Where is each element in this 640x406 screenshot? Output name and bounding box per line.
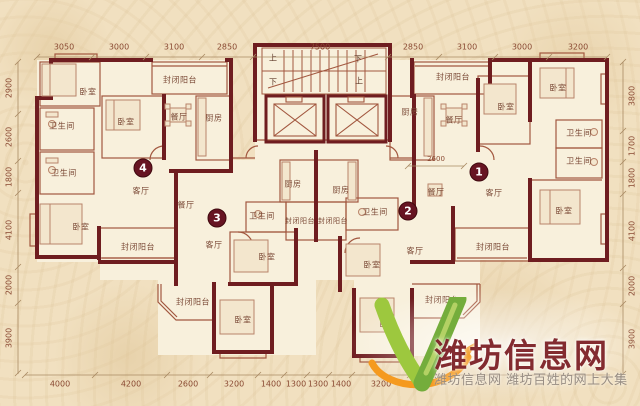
unit-badge: 3 [208, 209, 227, 228]
dimension-label-bottom: 3200 [224, 380, 244, 389]
dimension-label-left: 2600 [5, 127, 14, 147]
room-label: 卧室 [498, 102, 515, 113]
room-label: 客厅 [133, 186, 150, 197]
dimension-label-left: 3900 [5, 328, 14, 348]
dimension-label-top: 7500 [310, 43, 330, 52]
dimension-label-bottom: 2600 [178, 380, 198, 389]
dimension-label-bottom: 1300 [286, 380, 306, 389]
room-label: 卧室 [550, 83, 567, 94]
dimension-label-top: 3200 [568, 43, 588, 52]
room-label: 餐厅 [178, 200, 195, 211]
room-label: 客厅 [486, 188, 503, 199]
dimension-label-right: 3800 [628, 86, 637, 106]
room-label: 卧室 [235, 315, 252, 326]
room-label: 卧室 [259, 252, 276, 263]
room-label: 卧室 [73, 222, 90, 233]
dimension-label-top: 3100 [164, 43, 184, 52]
dimension-label-bottom: 4000 [50, 380, 70, 389]
dimension-label-top: 3000 [512, 43, 532, 52]
watermark-tagline: 潍坊信息网 潍坊百姓的网上大集 [434, 369, 628, 388]
stair-direction-label: 上 [355, 76, 363, 87]
dimension-label-top: 2850 [403, 43, 423, 52]
room-label: 厨房 [285, 179, 302, 190]
room-label: 封闭阳台 [176, 297, 210, 308]
dimension-label-top: 2850 [217, 43, 237, 52]
room-label: 卧室 [556, 206, 573, 217]
dimension-label-left: 2000 [5, 275, 14, 295]
room-label: 卫生间 [362, 207, 388, 218]
room-label: 客厅 [407, 246, 424, 257]
room-label: 封闭阳台 [436, 72, 470, 83]
dimension-label-internal: 2600 [427, 155, 445, 163]
room-label: 卫生间 [566, 128, 592, 139]
room-label: 卧室 [118, 117, 135, 128]
room-label: 卫生间 [249, 211, 275, 222]
unit-badge: 1 [470, 163, 489, 182]
stair-direction-label: 下 [354, 54, 362, 65]
room-label: 厨房 [206, 113, 223, 124]
dimension-label-bottom: 1300 [308, 380, 328, 389]
dimension-label-right: 1700 [628, 136, 637, 156]
room-label: 封闭阳台 [285, 216, 315, 226]
dimension-label-top: 3050 [54, 43, 74, 52]
room-label: 封闭阳台 [121, 242, 155, 253]
room-label: 卫生间 [49, 121, 75, 132]
room-label: 卫生间 [51, 168, 77, 179]
dimension-label-right: 4100 [628, 221, 637, 241]
room-label: 卫生间 [566, 156, 592, 167]
stair-direction-label: 下 [269, 77, 277, 88]
room-label: 厨房 [402, 107, 419, 118]
dimension-label-left: 1800 [5, 167, 14, 187]
dimension-label-top: 3000 [109, 43, 129, 52]
room-label: 餐厅 [171, 112, 188, 123]
room-label: 厨房 [333, 185, 350, 196]
dimension-label-bottom: 4200 [121, 380, 141, 389]
room-label: 客厅 [206, 240, 223, 251]
dimension-label-left: 4100 [5, 220, 14, 240]
unit-badge: 4 [134, 159, 153, 178]
room-label: 卧室 [364, 260, 381, 271]
unit-badge: 2 [399, 202, 418, 221]
dimension-label-bottom: 1400 [261, 380, 281, 389]
room-label: 封闭阳台 [318, 216, 348, 226]
room-label: 餐厅 [446, 115, 463, 126]
room-label: 卧室 [80, 87, 97, 98]
dimension-label-left: 2900 [5, 78, 14, 98]
stair-direction-label: 上 [269, 53, 277, 64]
dimension-label-top: 3100 [457, 43, 477, 52]
room-label: 封闭阳台 [476, 242, 510, 253]
room-label: 餐厅 [428, 187, 445, 198]
room-label: 封闭阳台 [163, 75, 197, 86]
dimension-label-bottom: 1400 [331, 380, 351, 389]
dimension-label-right: 2000 [628, 276, 637, 296]
floorplan-image: 卧室 卫生间 卫生间 卧室 封闭阳台 餐厅 厨房 客厅 卧室 封闭阳台 餐厅 客… [0, 0, 640, 406]
dimension-label-right: 1800 [628, 168, 637, 188]
